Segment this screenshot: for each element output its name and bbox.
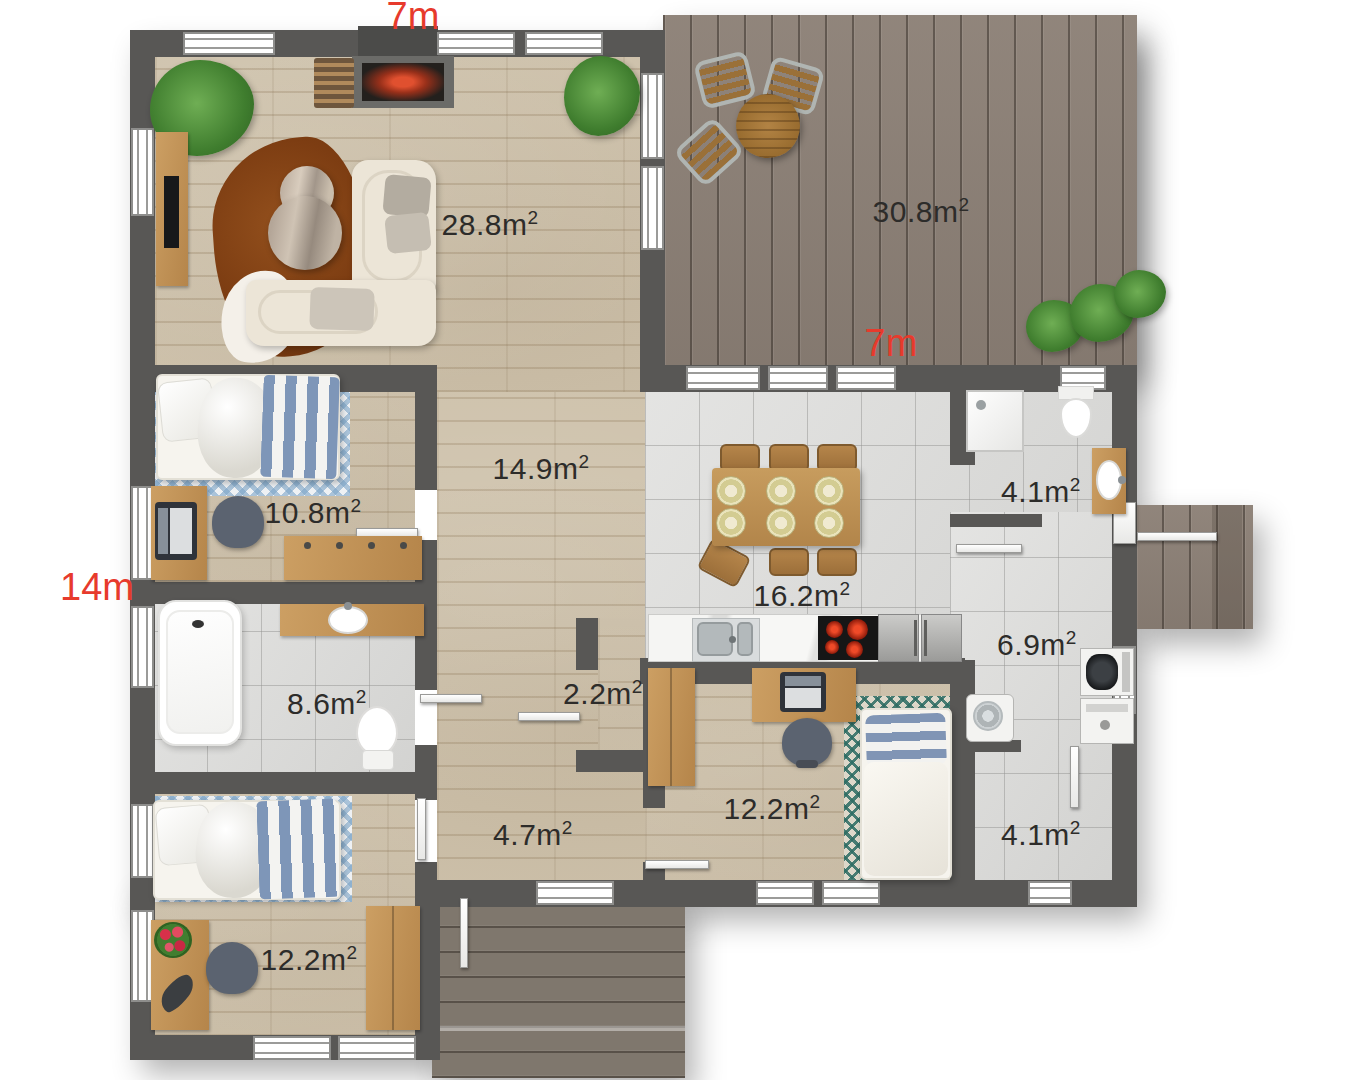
bush bbox=[1114, 270, 1166, 318]
firewood-rack bbox=[314, 58, 354, 108]
bed-blanket-striped bbox=[260, 375, 340, 480]
room-label-bedroom-center: 12.2m2 bbox=[724, 791, 821, 826]
door-leaf-closet bbox=[518, 712, 580, 721]
plate-setting bbox=[766, 476, 796, 506]
entry-porch bbox=[432, 898, 685, 1078]
bathtub-basin bbox=[166, 610, 234, 734]
door-leaf-entry bbox=[460, 898, 468, 968]
room-label-storage: 4.1m2 bbox=[1001, 817, 1081, 852]
terrace-table bbox=[736, 94, 800, 158]
room-label-bedroom-bottom-left: 12.2m2 bbox=[261, 942, 358, 977]
shower-drain bbox=[976, 400, 986, 410]
window bbox=[1028, 881, 1072, 905]
room-label-terrace: 30.8m2 bbox=[873, 194, 970, 229]
wall-spine-4 bbox=[415, 862, 437, 882]
wardrobe-seam bbox=[670, 668, 672, 786]
laptop-screen bbox=[785, 676, 821, 686]
dresser-knob bbox=[368, 542, 375, 549]
faucet bbox=[344, 602, 352, 610]
plate-setting bbox=[814, 476, 844, 506]
dresser-knob bbox=[304, 542, 311, 549]
dryer-knob bbox=[1100, 720, 1110, 730]
washer-panel bbox=[1122, 652, 1130, 692]
room-label-kitchen-dining: 16.2m2 bbox=[754, 578, 851, 613]
wall-spine-1 bbox=[415, 392, 437, 490]
heat-pump-fan bbox=[973, 701, 1003, 731]
washer-door bbox=[1086, 654, 1118, 690]
flower-vase bbox=[154, 922, 192, 958]
room-label-closet: 2.2m2 bbox=[563, 676, 643, 711]
wall-bath-tr-bottom bbox=[950, 514, 1042, 527]
burner bbox=[826, 621, 843, 638]
bed-blanket-striped bbox=[256, 799, 339, 900]
dining-chair bbox=[769, 548, 809, 576]
window bbox=[131, 606, 154, 688]
door-leaf-bathroom-tr bbox=[956, 544, 1022, 553]
vanity-sink bbox=[328, 606, 368, 634]
faucet bbox=[1118, 476, 1126, 484]
window bbox=[641, 166, 664, 250]
faucet bbox=[729, 636, 736, 643]
window bbox=[822, 881, 880, 905]
desk-chair bbox=[212, 496, 264, 548]
laptop-screen bbox=[158, 508, 168, 554]
wall-bath-bedroom-bl bbox=[130, 772, 437, 794]
dining-chair bbox=[817, 548, 857, 576]
dryer-slot bbox=[1086, 704, 1128, 712]
window bbox=[756, 881, 814, 905]
desk-chair bbox=[206, 942, 258, 994]
wall-spine-3 bbox=[415, 745, 437, 800]
sofa-cushion bbox=[384, 212, 432, 254]
bed-duvet bbox=[864, 762, 948, 876]
dresser-knob bbox=[336, 542, 343, 549]
dimension-label-middle: 7m bbox=[865, 322, 918, 365]
window bbox=[131, 804, 154, 878]
burner bbox=[825, 640, 839, 654]
burner bbox=[846, 641, 863, 658]
room-label-utility: 6.9m2 bbox=[997, 627, 1077, 662]
side-deck-plank bbox=[1212, 505, 1242, 629]
dimension-label-left: 14m bbox=[60, 566, 134, 609]
sofa-cushion bbox=[309, 287, 374, 331]
porch-step-edge bbox=[432, 1026, 685, 1031]
door-leaf-side-deck bbox=[1137, 532, 1217, 541]
room-label-hall: 14.9m2 bbox=[493, 451, 590, 486]
entry-door bbox=[536, 881, 614, 905]
dresser-knob bbox=[400, 542, 407, 549]
door-leaf-bedroom-center bbox=[645, 860, 709, 869]
bathtub-drain bbox=[192, 620, 204, 628]
laptop-keyboard bbox=[170, 508, 192, 554]
sink-basin-small bbox=[737, 622, 753, 656]
toilet-tank bbox=[362, 750, 394, 770]
terrace-door bbox=[686, 366, 760, 390]
bed-pillow-striped bbox=[865, 713, 947, 768]
door-leaf-bedroom-bl bbox=[417, 798, 426, 860]
window bbox=[836, 366, 896, 390]
plate-setting bbox=[716, 476, 746, 506]
window bbox=[338, 1036, 416, 1060]
coffee-table-large bbox=[268, 196, 342, 270]
fireplace-embers bbox=[362, 63, 444, 101]
plate-setting bbox=[716, 508, 746, 538]
room-label-bathroom-top-right: 4.1m2 bbox=[1001, 474, 1081, 509]
fridge-handle bbox=[914, 620, 917, 656]
door-leaf-bathroom-left bbox=[420, 694, 482, 703]
desk-chair bbox=[782, 718, 832, 766]
floor-plan-canvas: 28.8m2 30.8m2 14.9m2 10.8m2 16.2m2 4.1m2… bbox=[0, 0, 1350, 1080]
shower bbox=[966, 390, 1024, 452]
window bbox=[525, 32, 603, 55]
tv bbox=[164, 176, 179, 248]
room-label-living-room: 28.8m2 bbox=[442, 207, 539, 242]
laptop-keyboard bbox=[785, 688, 821, 708]
plate-setting bbox=[766, 508, 796, 538]
wall-closet-v bbox=[576, 618, 598, 670]
room-label-hallway: 4.7m2 bbox=[493, 817, 573, 852]
burner bbox=[847, 619, 868, 640]
window bbox=[131, 128, 154, 216]
door-leaf-storage bbox=[1070, 746, 1079, 808]
sofa-cushion bbox=[382, 174, 431, 218]
window bbox=[768, 366, 828, 390]
window bbox=[183, 32, 275, 55]
room-label-bedroom-upper-left: 10.8m2 bbox=[265, 495, 362, 530]
room-label-bathroom-left: 8.6m2 bbox=[287, 686, 367, 721]
dimension-label-top: 7m bbox=[387, 0, 440, 38]
window bbox=[437, 32, 515, 55]
fridge-door bbox=[921, 614, 962, 662]
sink-basin bbox=[697, 622, 733, 656]
window bbox=[253, 1036, 331, 1060]
fridge-handle bbox=[924, 620, 927, 656]
plate-setting bbox=[814, 508, 844, 538]
wardrobe-seam bbox=[392, 906, 394, 1030]
fridge-door bbox=[878, 614, 919, 662]
window bbox=[641, 73, 664, 159]
chair-base bbox=[796, 760, 818, 768]
